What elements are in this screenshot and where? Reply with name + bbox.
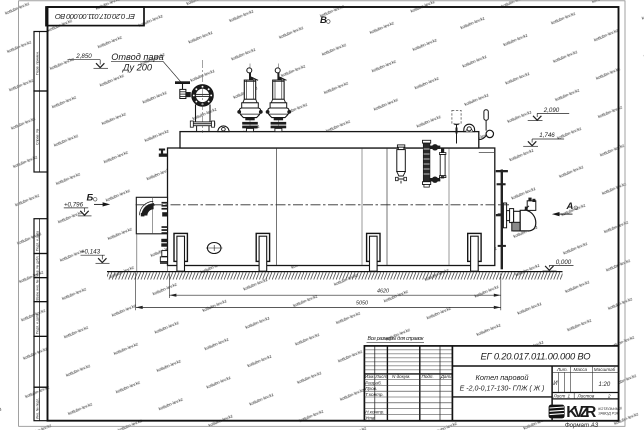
svg-text:Подп. и дата: Подп. и дата	[35, 314, 39, 334]
svg-text:ЕГ 0.20.017.011.00.000 ВО: ЕГ 0.20.017.011.00.000 ВО	[481, 350, 592, 361]
svg-text:Б: Б	[87, 193, 94, 204]
svg-text:2,850: 2,850	[75, 53, 92, 60]
svg-text:Перв. примен.: Перв. примен.	[35, 51, 39, 75]
svg-text:Котел паровой: Котел паровой	[475, 373, 528, 382]
svg-text:Справ. №: Справ. №	[35, 129, 39, 145]
svg-text:Инв. № подл.: Инв. № подл.	[35, 398, 39, 419]
svg-text:Все размеры для справок: Все размеры для справок	[368, 336, 424, 342]
svg-text:N докум.: N докум.	[392, 374, 411, 379]
svg-text:1:20: 1:20	[599, 382, 611, 388]
svg-text:А: А	[566, 201, 574, 212]
svg-text:1: 1	[568, 393, 571, 398]
svg-text:В: В	[320, 15, 327, 26]
svg-text:И: И	[553, 381, 558, 387]
svg-text:Изм.: Изм.	[365, 374, 375, 379]
svg-text:Подп.: Подп.	[422, 374, 434, 379]
svg-text:Листов: Листов	[577, 393, 595, 398]
svg-text:Отвод пара: Отвод пара	[111, 52, 164, 62]
svg-text:KVZR: KVZR	[566, 404, 596, 421]
svg-text:Т.контр.: Т.контр.	[365, 392, 384, 397]
svg-text:Ду 200: Ду 200	[122, 63, 153, 73]
svg-text:ЕГ 0.20.017.011.00.000 ВО: ЕГ 0.20.017.011.00.000 ВО	[55, 12, 135, 21]
svg-text:Масштаб: Масштаб	[594, 367, 616, 372]
svg-text:Масса: Масса	[574, 367, 588, 372]
svg-text:ЗАВОД РЭП: ЗАВОД РЭП	[598, 411, 619, 415]
svg-text:Н.контр.: Н.контр.	[365, 409, 384, 414]
svg-text:КОТЕЛЬНЫЙ: КОТЕЛЬНЫЙ	[598, 407, 622, 411]
svg-text:Е -2,0-0,17-130- ГЛЖ ( Ж ): Е -2,0-0,17-130- ГЛЖ ( Ж )	[460, 386, 545, 393]
svg-text:Пров.: Пров.	[365, 386, 377, 391]
svg-text:Формат А3: Формат А3	[565, 422, 599, 429]
svg-text:Дата: Дата	[440, 374, 454, 379]
svg-text:4620: 4620	[377, 288, 389, 294]
svg-text:2: 2	[607, 393, 611, 398]
svg-text:Инв. № дубл.: Инв. № дубл.	[35, 255, 39, 276]
svg-text:Разраб.: Разраб.	[365, 380, 382, 385]
svg-text:2,090: 2,090	[543, 107, 560, 114]
svg-text:Подп. и дата: Подп. и дата	[35, 231, 39, 251]
svg-text:+0,143: +0,143	[81, 249, 101, 256]
svg-text:5050: 5050	[356, 301, 368, 307]
svg-text:0,000: 0,000	[556, 259, 572, 266]
svg-text:Утв.: Утв.	[365, 415, 375, 420]
svg-text:Лист: Лист	[553, 393, 566, 398]
svg-text:Лист: Лист	[375, 374, 388, 379]
svg-text:+0,796: +0,796	[64, 201, 84, 208]
svg-text:Взам. инв. №: Взам. инв. №	[35, 279, 39, 300]
svg-text:1,746: 1,746	[539, 132, 555, 139]
svg-text:Лит.: Лит.	[556, 367, 568, 372]
